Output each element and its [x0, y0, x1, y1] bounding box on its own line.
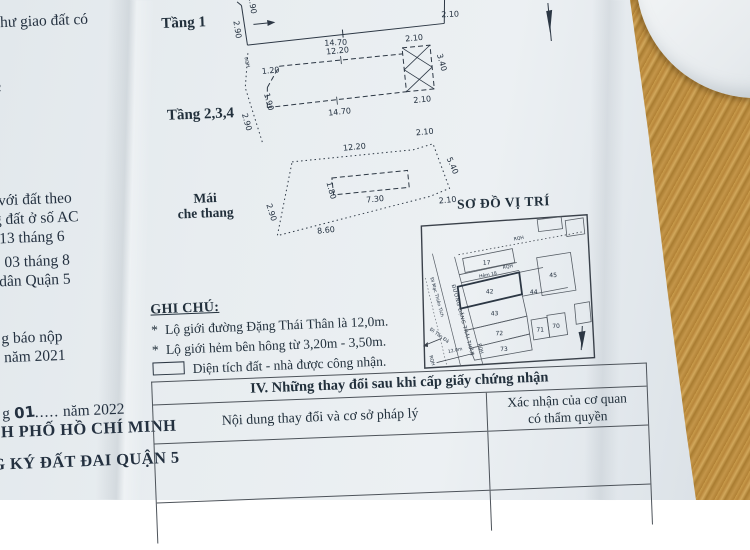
dotted-leader: ..... [34, 403, 59, 421]
dim-t234-balcony-top: 2.10 [405, 33, 424, 44]
rqh-label: RQH [513, 235, 524, 243]
lot-72: 72 [495, 330, 503, 337]
dim-t234-balcony-bottom: 2.10 [413, 94, 432, 105]
dim-mai-bottom: 8.60 [317, 225, 336, 236]
lot-44: 44 [530, 289, 538, 296]
street-width: 12.0m [447, 346, 463, 355]
north-label: B [544, 0, 551, 2]
margin-line: Ở như giao đất có [0, 11, 88, 33]
site-map-section: SƠ ĐỒ VỊ TRÍ ĐƯỜNG ĐẶNG THÁI THÂN Đi Mạc… [414, 192, 599, 378]
plan-label-mai: Mái che thang [173, 189, 238, 221]
date-prefix: g [2, 405, 10, 422]
dim-t234-bottom: 14.70 [328, 106, 352, 117]
dim-t234-outer: 2.90 [240, 112, 253, 132]
margin-line: 03 tháng 8 [4, 252, 70, 272]
margin-line: y 13 tháng 6 [0, 228, 65, 249]
handwritten-day: 01 [13, 402, 36, 422]
direction-bottom: Đi Tản Đà [428, 326, 451, 345]
plan-label-tang1: Tầng 1 [161, 14, 206, 33]
dim-tang1-right: 2.10 [441, 10, 459, 20]
dim-t234-left-slant: 1.20 [261, 65, 280, 76]
dim-mai-topright: 2.10 [415, 127, 434, 138]
notes-section: GHI CHÚ: *Lộ giới đường Đặng Thái Thân l… [150, 291, 390, 380]
plan-label-tang234: Tầng 2,3,4 [167, 105, 235, 125]
lot-45: 45 [549, 272, 557, 279]
dim-mai-inner-h: 1.80 [324, 181, 337, 201]
lot-17: 17 [483, 259, 491, 266]
dim-t234-top: 12.20 [326, 45, 350, 56]
lot-70: 70 [552, 323, 560, 330]
lot-42: 42 [486, 288, 494, 295]
margin-line: g báo nộp [1, 328, 63, 348]
margin-line: g đất ở số AC [0, 208, 79, 229]
legend-swatch [152, 361, 184, 375]
margin-line: năm 2021 [4, 347, 66, 367]
lot-73: 73 [500, 346, 508, 353]
dim-mai-top: 12.20 [343, 141, 367, 152]
document-content: Ở như giao đất có 2 với đất theo g đất ở… [0, 0, 750, 502]
lot-71: 71 [536, 326, 544, 333]
lot-43: 43 [491, 310, 499, 317]
margin-line: dân Quận 5 [0, 271, 71, 292]
dim-mai-inner-w: 7.30 [366, 194, 385, 205]
dim-t234-left-vert: 1.90 [262, 92, 275, 112]
changes-table: IV. Những thay đổi sau khi cấp giấy chứn… [151, 363, 653, 544]
dim-mai-left: 2.90 [264, 202, 278, 222]
site-map: ĐƯỜNG ĐẶNG THÁI THÂN Đi Mạc Thiên Tích Đ… [415, 210, 599, 373]
north-arrow: B [537, 0, 563, 45]
dim-tang1-left: 2.90 [231, 20, 243, 39]
margin-line: 2 [0, 82, 1, 94]
rqh-label: RQH [476, 343, 484, 354]
dim-t234-balcony-right: 3.40 [435, 53, 448, 73]
dim-tang1-topleft: 1.90 [246, 0, 258, 14]
dim-mai-right: 5.40 [445, 156, 460, 176]
rqh-label: RQH [427, 355, 435, 366]
margin-line: với đất theo [0, 190, 72, 211]
label-rqh: RQH [242, 57, 251, 69]
table-col-right-header: Xác nhận của cơ quan có thẩm quyền [487, 387, 648, 431]
